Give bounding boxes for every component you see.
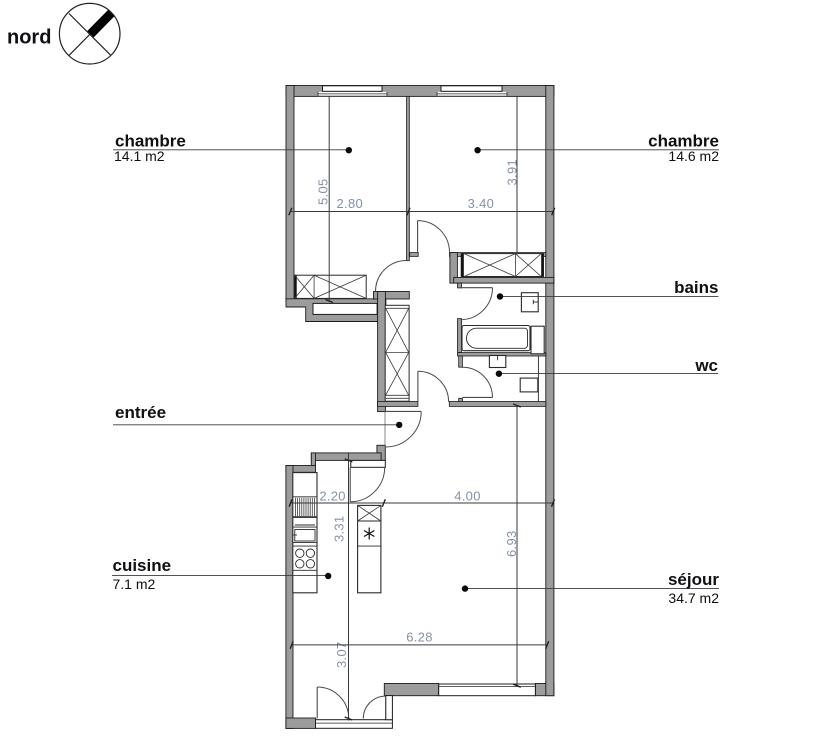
svg-text:entrée: entrée	[115, 403, 166, 422]
svg-text:6.28: 6.28	[406, 630, 433, 645]
svg-text:34.7 m2: 34.7 m2	[668, 590, 719, 606]
svg-text:2.80: 2.80	[337, 196, 364, 211]
svg-text:3.40: 3.40	[468, 196, 495, 211]
svg-text:wc: wc	[694, 356, 718, 375]
svg-text:3.91: 3.91	[505, 159, 520, 186]
svg-text:7.1 m2: 7.1 m2	[113, 576, 156, 592]
svg-text:5.05: 5.05	[315, 178, 330, 205]
svg-text:séjour: séjour	[668, 570, 719, 589]
svg-text:4.00: 4.00	[454, 488, 481, 503]
svg-text:14.1 m2: 14.1 m2	[114, 148, 165, 164]
svg-text:bains: bains	[674, 278, 718, 297]
svg-text:nord: nord	[7, 27, 51, 49]
svg-text:14.6 m2: 14.6 m2	[668, 148, 719, 164]
svg-text:3.31: 3.31	[332, 515, 347, 542]
svg-text:6.93: 6.93	[504, 530, 519, 557]
svg-text:2.20: 2.20	[319, 488, 346, 503]
svg-text:3.07: 3.07	[334, 641, 349, 668]
svg-text:cuisine: cuisine	[113, 556, 172, 575]
